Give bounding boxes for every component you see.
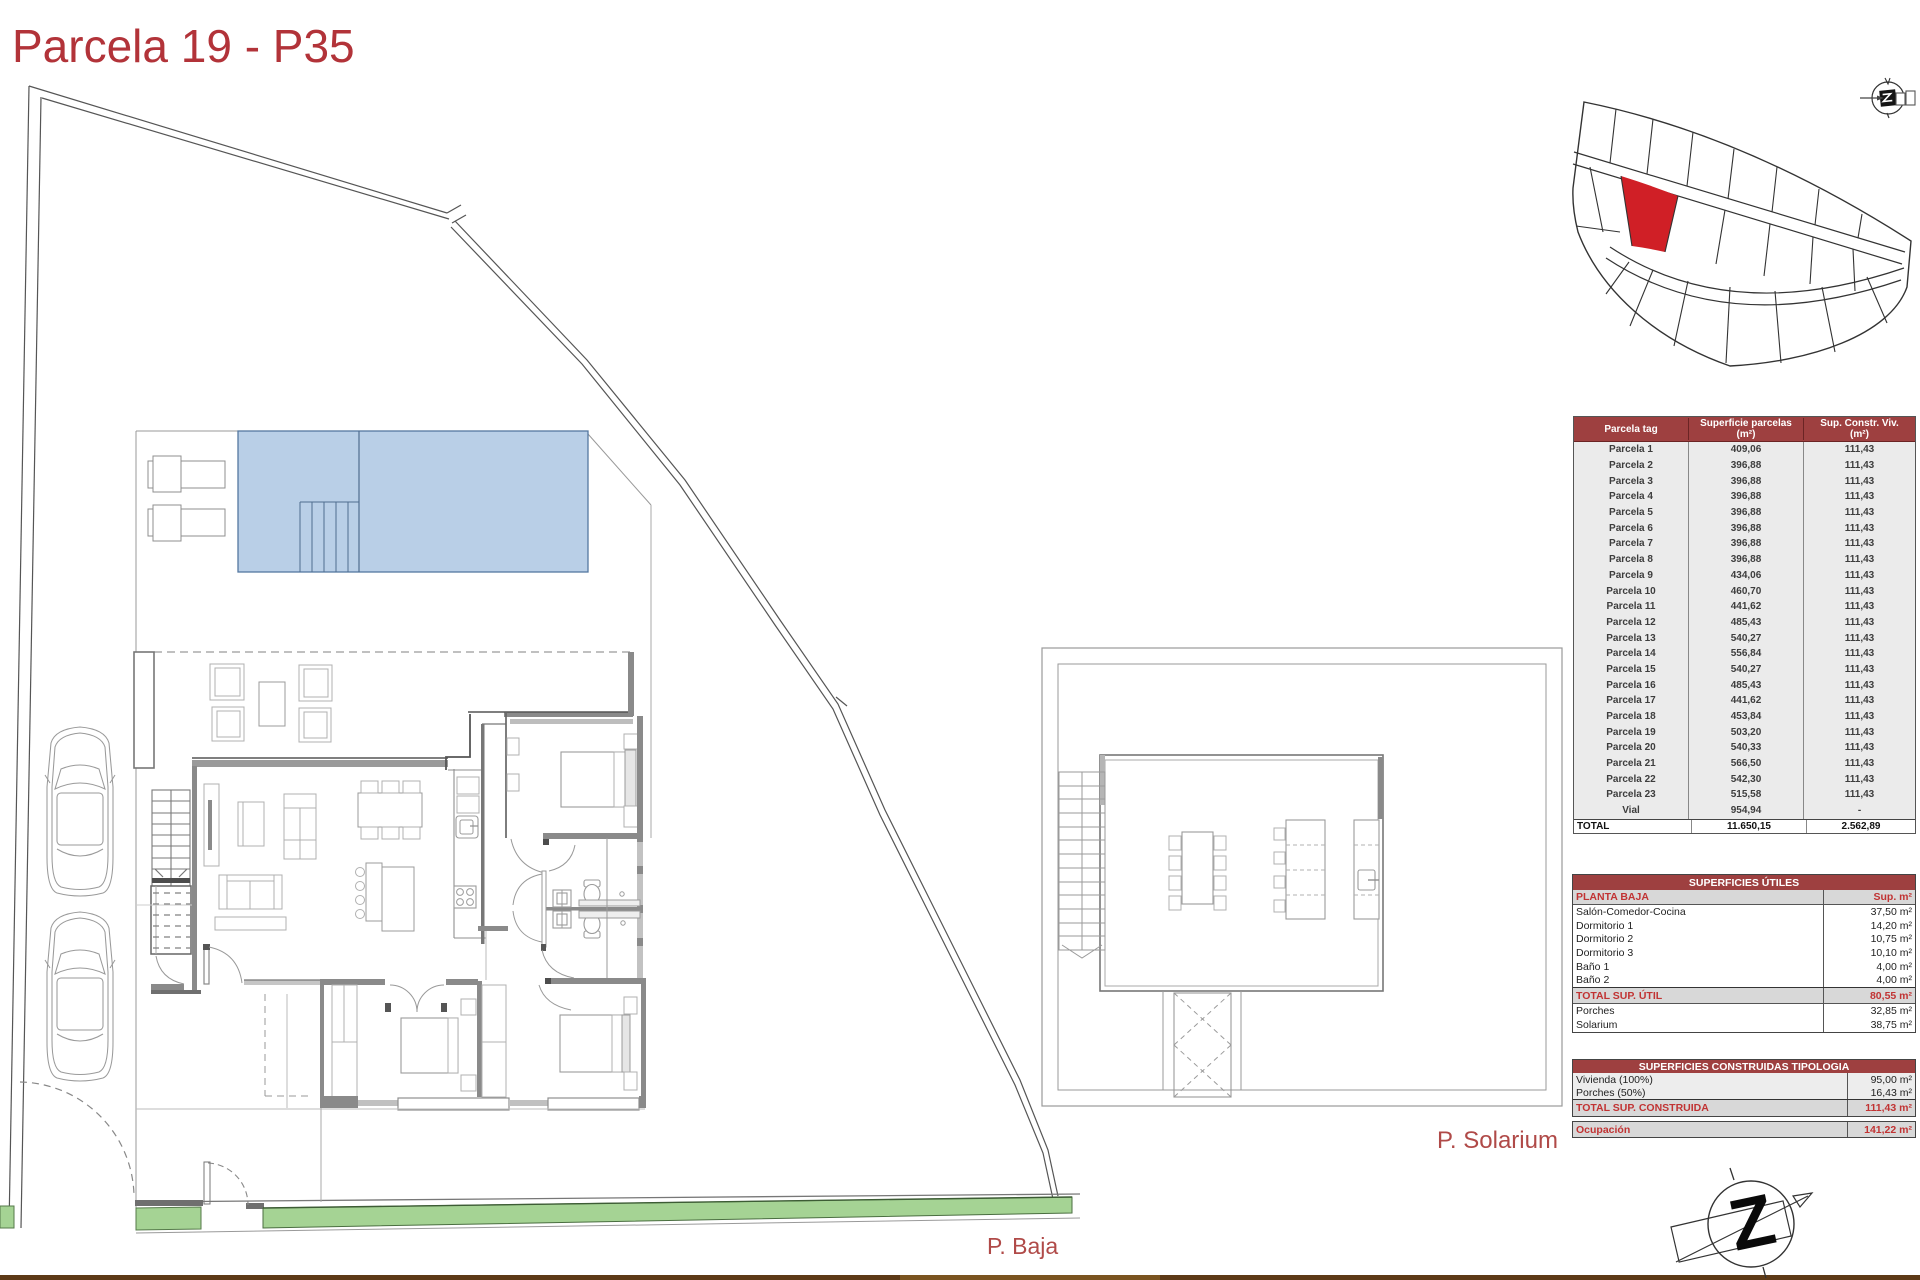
svg-text:Z: Z	[1722, 1179, 1782, 1266]
